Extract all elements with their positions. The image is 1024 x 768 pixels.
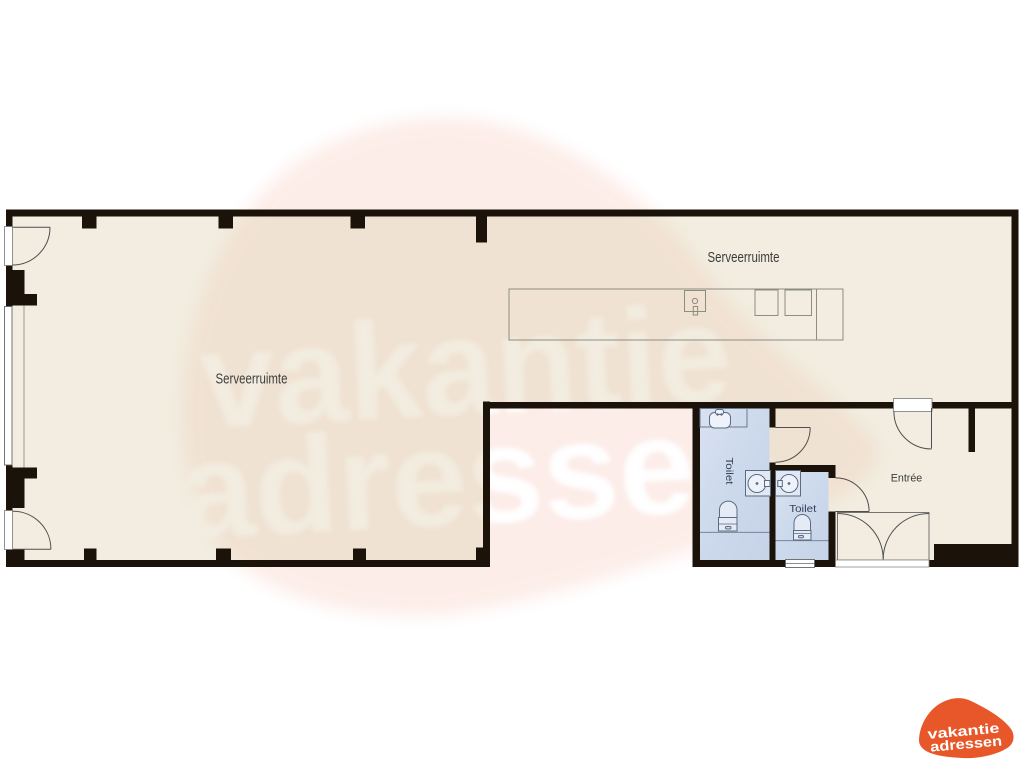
svg-text:Entrée: Entrée	[891, 472, 923, 484]
svg-text:Toilet: Toilet	[723, 458, 734, 485]
svg-text:Serveerruimte: Serveerruimte	[708, 250, 780, 266]
svg-text:Serveerruimte: Serveerruimte	[216, 372, 288, 388]
svg-text:Toilet: Toilet	[789, 504, 816, 515]
